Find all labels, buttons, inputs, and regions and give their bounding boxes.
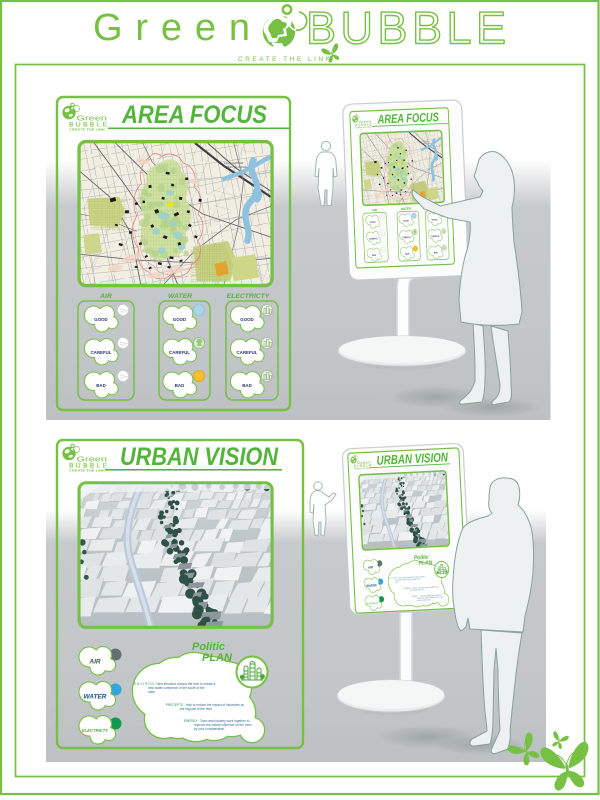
svg-text:CREATE THE LINK: CREATE THE LINK [238, 56, 331, 63]
svg-text:Green: Green [93, 7, 250, 49]
